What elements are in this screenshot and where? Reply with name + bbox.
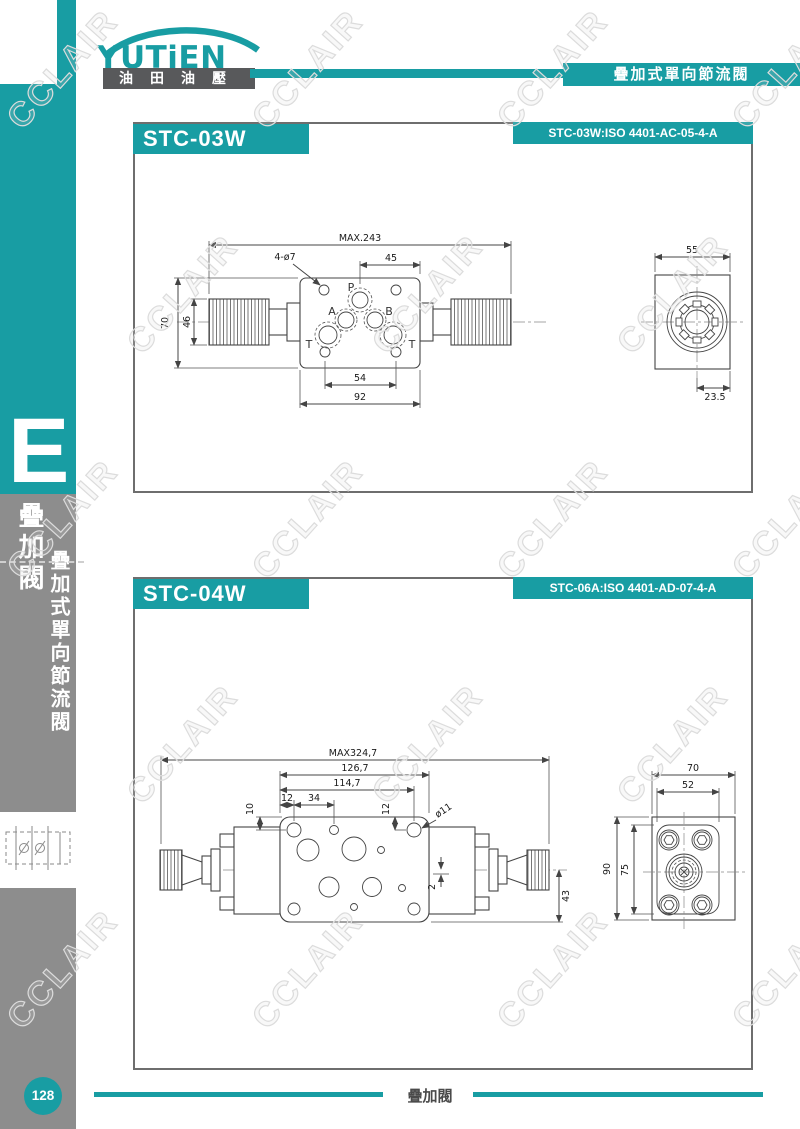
section-stc03w: STC-03W STC-03W:ISO 4401-AC-05-4-A bbox=[133, 122, 753, 493]
port-label-t-left: T bbox=[305, 338, 313, 351]
right-block bbox=[429, 827, 475, 914]
dim-center-offset: 2 bbox=[427, 884, 438, 890]
dim-bolt-span: 54 bbox=[354, 373, 366, 384]
dim-end-bolt-vspan: 75 bbox=[620, 864, 631, 876]
stc04w-drawing: MAX324,7 126,7 114,7 12 34 10 bbox=[135, 579, 751, 1068]
page-number-badge: 128 bbox=[24, 1077, 62, 1115]
dim-plate-width: 126,7 bbox=[341, 763, 368, 774]
dim-hole-offset: 12 bbox=[381, 803, 392, 815]
sidebar-section-block: E bbox=[0, 84, 76, 494]
dim-overall-length: MAX324,7 bbox=[329, 748, 377, 759]
stc04w-side-view bbox=[160, 817, 549, 922]
dim-end-height: 90 bbox=[602, 863, 613, 875]
dim-port-offset: 45 bbox=[385, 253, 397, 264]
logo-subtitle: 油田油壓 bbox=[103, 68, 255, 89]
catalog-page: CCLAIR CCLAIR CCLAIR CCLAIR CCLAIR CCLAI… bbox=[0, 0, 800, 1129]
stc03w-end-view: 55 23.5 bbox=[641, 245, 744, 403]
sidebar-bottom-box: 128 bbox=[0, 888, 76, 1129]
hydraulic-symbol bbox=[4, 824, 76, 874]
stc03w-drawing: P A B T T MAX.243 45 4-ø7 bbox=[135, 124, 751, 491]
dim-top-offset: 10 bbox=[245, 803, 256, 815]
fold-mark bbox=[0, 561, 84, 563]
right-knob bbox=[451, 299, 511, 345]
sidebar-category-box: 疊加閥 疊加式單向節流閥 bbox=[0, 494, 76, 812]
dim-hole-pitch: 34 bbox=[308, 793, 320, 804]
dim-end-offset: 23.5 bbox=[704, 392, 725, 403]
dim-mount-holes: 4-ø7 bbox=[274, 252, 295, 263]
dim-end-bolt-span: 52 bbox=[682, 780, 694, 791]
dim-overall-length: MAX.243 bbox=[339, 233, 381, 244]
section-stc04w: STC-04W STC-06A:ISO 4401-AD-07-4-A bbox=[133, 577, 753, 1070]
left-block bbox=[234, 827, 280, 914]
sidebar-subcategory: 疊加式單向節流閥 bbox=[44, 550, 73, 734]
valve-body bbox=[300, 278, 420, 368]
valve-plate bbox=[280, 817, 429, 922]
yutien-logo: YUTiEN bbox=[95, 24, 265, 72]
dim-hole-span: 114,7 bbox=[333, 778, 360, 789]
port-label-b: B bbox=[385, 305, 393, 318]
left-knob bbox=[160, 850, 182, 890]
dim-hole-dia: ø11 bbox=[433, 801, 454, 820]
dim-end-width: 55 bbox=[686, 245, 698, 256]
dim-end-width: 70 bbox=[687, 763, 699, 774]
footer-label: 疊加閥 bbox=[395, 1085, 465, 1106]
section-letter: E bbox=[8, 414, 69, 489]
dim-bottom-height: 43 bbox=[561, 890, 572, 902]
sidebar-top-strip bbox=[57, 0, 76, 84]
left-knob bbox=[209, 299, 269, 345]
header-rule bbox=[250, 69, 563, 78]
right-knob bbox=[527, 850, 549, 890]
port-label-t-right: T bbox=[408, 338, 416, 351]
dim-body-width: 92 bbox=[354, 392, 366, 403]
dim-edge-to-hole: 12 bbox=[281, 793, 293, 804]
stc04w-end-view: 70 52 90 75 bbox=[602, 763, 745, 929]
stc03w-side-view: P A B T T bbox=[209, 278, 511, 368]
port-label-p: P bbox=[348, 281, 355, 294]
port-label-a: A bbox=[328, 305, 336, 318]
page-title: 疊加式單向節流閥 bbox=[563, 63, 800, 86]
footer-rule-left bbox=[94, 1092, 383, 1097]
footer-rule-right bbox=[473, 1092, 763, 1097]
dim-knob-height: 46 bbox=[182, 316, 193, 328]
dim-overall-height: 70 bbox=[160, 317, 171, 329]
